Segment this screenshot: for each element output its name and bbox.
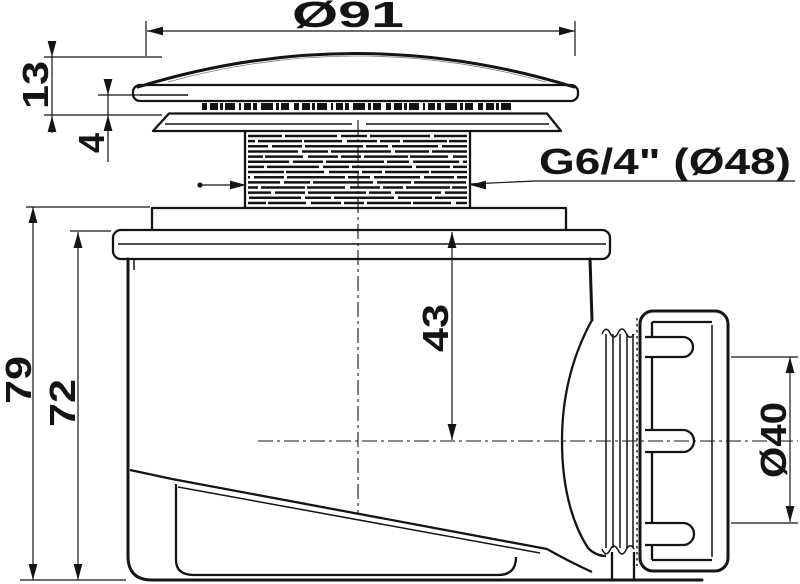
dim-arrowhead — [470, 181, 486, 190]
dim-label-rim-gap: 4 — [71, 133, 112, 153]
cap-rim-band — [133, 85, 578, 101]
dim-arrowhead — [559, 27, 575, 36]
dim-arrowhead — [74, 232, 83, 248]
body-inner-cup — [176, 484, 516, 575]
dimensions: Ø91 G6/4" (Ø48) 13 4 79 72 43 Ø40 — [0, 0, 798, 580]
dim-arrowhead — [29, 207, 38, 223]
body-sloped-floor-inner — [178, 487, 540, 553]
dim-arrowhead — [29, 564, 38, 580]
corrugated-seal — [602, 329, 634, 579]
dim-arrowhead — [48, 116, 57, 132]
cap-dome-shading — [168, 56, 546, 82]
body-sloped-floor — [130, 470, 547, 549]
body-floor-outlet-join — [547, 549, 592, 572]
dim-arrowhead — [230, 181, 246, 190]
dim-arrowhead — [786, 357, 795, 373]
outlet-transition — [562, 320, 606, 556]
thread-section — [245, 131, 470, 208]
dim-arrowhead — [448, 232, 457, 248]
dim-label-cap-height: 13 — [15, 61, 56, 109]
outlet-slot-bottom — [645, 523, 694, 545]
dim-arrowhead — [48, 41, 57, 57]
strainer-disc — [153, 114, 561, 132]
technical-drawing-canvas: Ø91 G6/4" (Ø48) 13 4 79 72 43 Ø40 — [0, 0, 800, 584]
dim-arrowhead — [448, 424, 457, 440]
dim-arrowhead — [147, 27, 163, 36]
dim-arrowhead — [74, 564, 83, 580]
dim-arrowhead — [786, 506, 795, 522]
dim-label-body-height: 72 — [42, 379, 83, 427]
dim-label-depth: 43 — [415, 304, 456, 352]
dim-label-total-height: 79 — [0, 356, 39, 404]
drain-trap-drawing: Ø91 G6/4" (Ø48) 13 4 79 72 43 Ø40 — [0, 0, 800, 584]
tank-lid-plate — [152, 208, 566, 231]
dim-arrowhead — [104, 115, 113, 131]
outlet-slot-top — [645, 337, 693, 357]
dim-label-outlet-diameter: Ø40 — [753, 402, 794, 478]
thread-spec-label: G6/4" (Ø48) — [539, 141, 791, 182]
cap-dome — [138, 54, 574, 88]
dim-arrowhead — [104, 79, 113, 95]
dim-label-cap-diameter: Ø91 — [292, 0, 404, 35]
